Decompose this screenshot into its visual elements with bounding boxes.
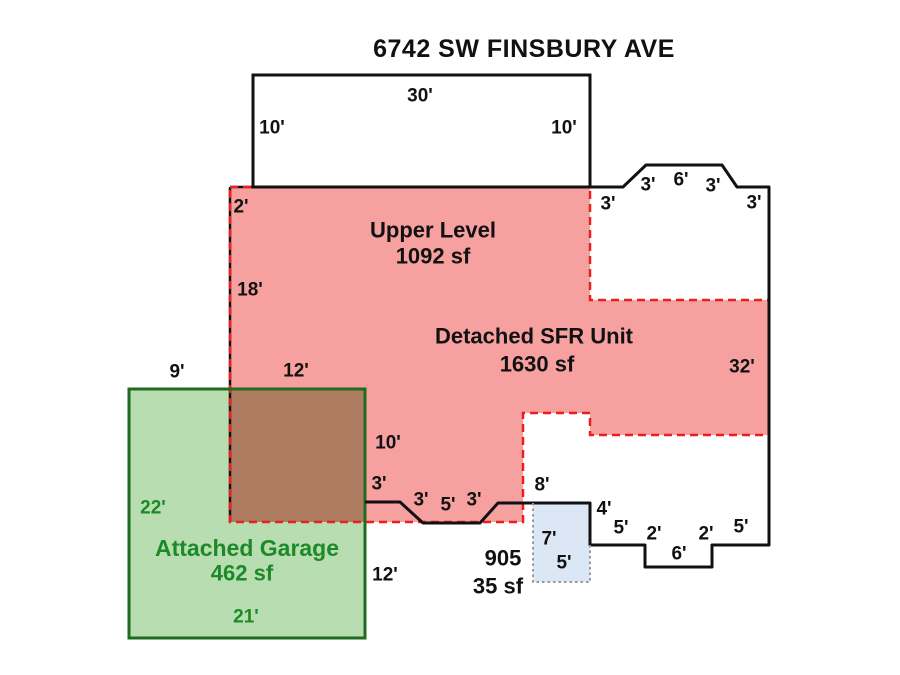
dim-mid-3: 3' xyxy=(371,474,386,495)
dim-top-30: 30' xyxy=(407,86,433,107)
dim-garage-top-9: 9' xyxy=(169,362,184,383)
dim-step-left-5: 5' xyxy=(613,518,628,539)
dim-bottom-diag-right-3: 3' xyxy=(466,490,481,511)
dim-mid-10: 10' xyxy=(375,433,401,454)
dim-bay-top-6: 6' xyxy=(673,170,688,191)
detached-sfr-label: Detached SFR Unit xyxy=(435,324,634,349)
dim-garage-top-12: 12' xyxy=(283,361,309,382)
dim-right-32: 32' xyxy=(729,357,755,378)
dim-notch-left-2: 2' xyxy=(646,524,661,545)
porch-area: 35 sf xyxy=(473,574,524,599)
porch-label: 905 xyxy=(485,546,522,571)
dim-notch-6: 6' xyxy=(671,544,686,565)
property-title: 6742 SW FINSBURY AVE xyxy=(373,35,675,63)
dim-notch-right-2: 2' xyxy=(698,524,713,545)
dim-garage-left-22: 22' xyxy=(140,498,166,519)
sketch-svg: 6742 SW FINSBURY AVE Upper Level1092 sfD… xyxy=(0,0,900,675)
dim-step-right-5: 5' xyxy=(733,517,748,538)
dim-bottom-8: 8' xyxy=(534,475,549,496)
attached-garage-label: Attached Garage xyxy=(155,535,339,561)
dim-upper-left-10: 10' xyxy=(259,118,285,139)
dim-bay-left-3: 3' xyxy=(600,194,615,215)
dim-bay-right-3: 3' xyxy=(746,193,761,214)
dim-2: 2' xyxy=(233,197,248,218)
dim-left-18: 18' xyxy=(237,280,263,301)
dim-step-4: 4' xyxy=(596,499,611,520)
dim-garage-right-12: 12' xyxy=(372,565,398,586)
dim-porch-5: 5' xyxy=(556,553,571,574)
upper-level-area: 1092 sf xyxy=(396,244,471,269)
dim-garage-bottom-21: 21' xyxy=(233,607,259,628)
upper-level-label: Upper Level xyxy=(370,218,496,243)
dim-bay-diag-left-3: 3' xyxy=(640,175,655,196)
floor-plan-sketch: 6742 SW FINSBURY AVE Upper Level1092 sfD… xyxy=(0,0,900,675)
garage-house-overlap-fill xyxy=(230,389,365,522)
attached-garage-area: 462 sf xyxy=(211,561,274,586)
dim-bottom-diag-left-3: 3' xyxy=(413,490,428,511)
dim-bay-diag-right-3: 3' xyxy=(705,176,720,197)
dim-porch-7: 7' xyxy=(541,529,556,550)
detached-sfr-area: 1630 sf xyxy=(500,352,575,377)
dim-bottom-flat-5: 5' xyxy=(440,495,455,516)
dim-upper-right-10: 10' xyxy=(551,118,577,139)
